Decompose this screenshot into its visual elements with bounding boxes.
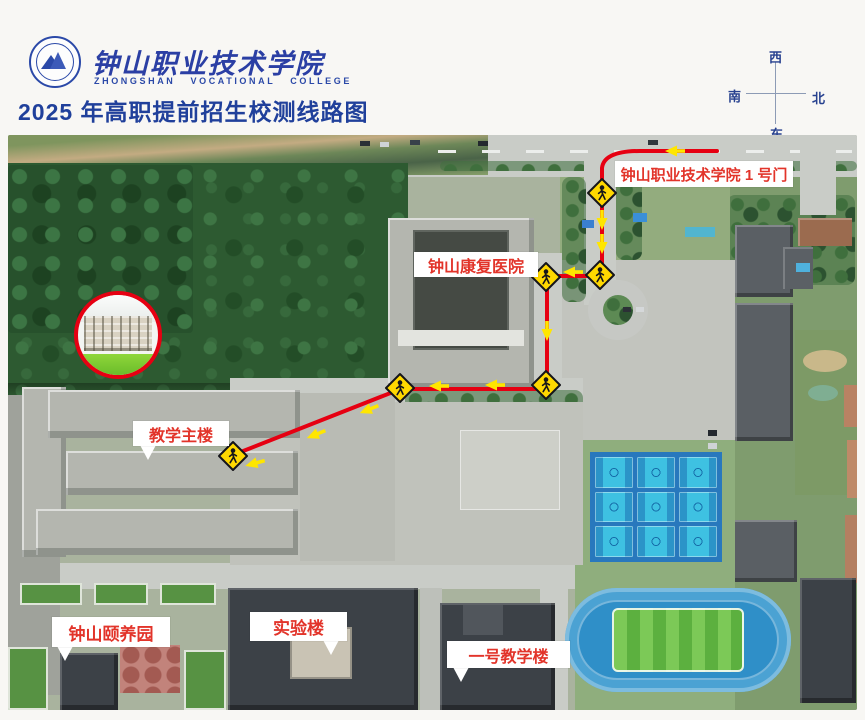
garden-pond [808,385,838,401]
compass-south-label: 南 [728,86,741,105]
car [708,443,717,449]
car [636,307,644,312]
teal-roof [685,227,715,237]
minor-path [420,588,442,710]
basketball-court [679,526,717,557]
green-roof-building [184,650,226,710]
basketball-courts [590,452,722,562]
building-forecourt [300,393,395,561]
label-hospital: 钟山康复医院 [414,252,538,277]
label-main-building: 教学主楼 [133,421,229,446]
residential-building [735,303,793,441]
residential-building [800,578,856,703]
terracotta-roof [844,385,857,427]
terracotta-building [798,218,852,246]
soccer-field [612,608,744,672]
green-roof-building [8,647,48,710]
swimming-pool [796,263,810,272]
residential-building [733,520,797,582]
car [410,140,420,145]
label-gate1: 钟山职业技术学院 1 号门 [615,161,793,187]
main-building-south-wing [36,509,298,555]
photo-lawn [78,354,158,375]
label-nursing-garden: 钟山颐养园 [52,617,170,647]
label-pointer [453,667,469,682]
plaza-courts [460,430,560,510]
basketball-court [595,526,633,557]
car [380,142,389,147]
mosaic-plaza [120,645,180,693]
teaching-building-1-wing [463,605,503,635]
photo-building [84,316,151,351]
basketball-court [679,457,717,488]
east-side-road [800,135,836,215]
basketball-court [637,492,675,523]
terracotta-roof [845,515,857,583]
compass-vertical-line [775,62,776,124]
label-teaching-building-1: 一号教学楼 [447,641,570,668]
car [708,430,717,436]
hospital-colonnade [398,330,524,346]
car [478,141,488,146]
route-map-poster: 钟山职业技术学院 ZHONGSHAN VOCATIONAL COLLEGE 20… [0,0,865,720]
main-building-photo-inset [74,291,162,379]
college-name-english: ZHONGSHAN VOCATIONAL COLLEGE [94,76,352,86]
terracotta-roof [847,440,857,498]
garden-path [803,350,847,372]
compass-north-label: 北 [812,88,825,107]
road-lane-markings [438,150,857,153]
blue-canopy [582,220,594,228]
label-pointer [57,646,73,661]
seal-mountain-icon [50,52,66,69]
tree-strip [562,177,586,302]
compass-west-label: 西 [769,47,782,66]
basketball-court [679,492,717,523]
green-roof-building [94,583,148,605]
compass: 西 南 北 东 [730,50,830,134]
green-roof-building [160,583,216,605]
car [648,140,658,145]
main-building-middle-wing [66,451,298,495]
blue-canopy [633,213,647,222]
car [623,307,631,312]
label-pointer [323,640,339,655]
college-seal-logo-icon [29,36,81,88]
page-title: 2025 年高职提前招生校测线路图 [18,93,369,127]
green-roof-building [20,583,82,605]
compass-horizontal-line [746,93,806,94]
car [360,141,370,146]
basketball-court [595,492,633,523]
label-pointer [140,445,156,460]
basketball-court [637,457,675,488]
basketball-court [637,526,675,557]
label-lab-building: 实验楼 [250,612,347,641]
basketball-court [595,457,633,488]
nursing-building [60,653,118,710]
